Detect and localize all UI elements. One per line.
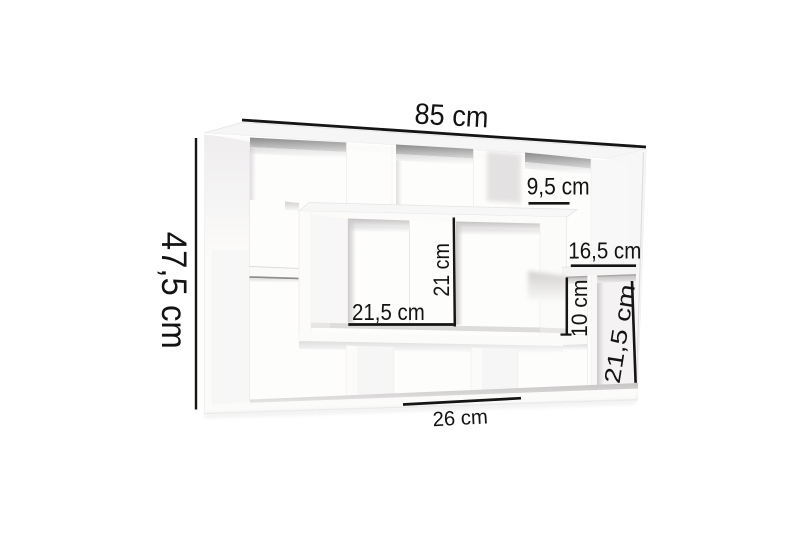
- svg-text:9,5 cm: 9,5 cm: [527, 174, 590, 201]
- svg-text:26 cm: 26 cm: [432, 405, 488, 431]
- svg-text:16,5 cm: 16,5 cm: [568, 238, 641, 264]
- svg-text:10 cm: 10 cm: [567, 280, 592, 338]
- svg-text:47,5 cm: 47,5 cm: [154, 232, 193, 349]
- svg-text:85 cm: 85 cm: [414, 98, 490, 135]
- svg-text:21,5 cm: 21,5 cm: [352, 299, 425, 325]
- svg-text:21 cm: 21 cm: [429, 243, 454, 297]
